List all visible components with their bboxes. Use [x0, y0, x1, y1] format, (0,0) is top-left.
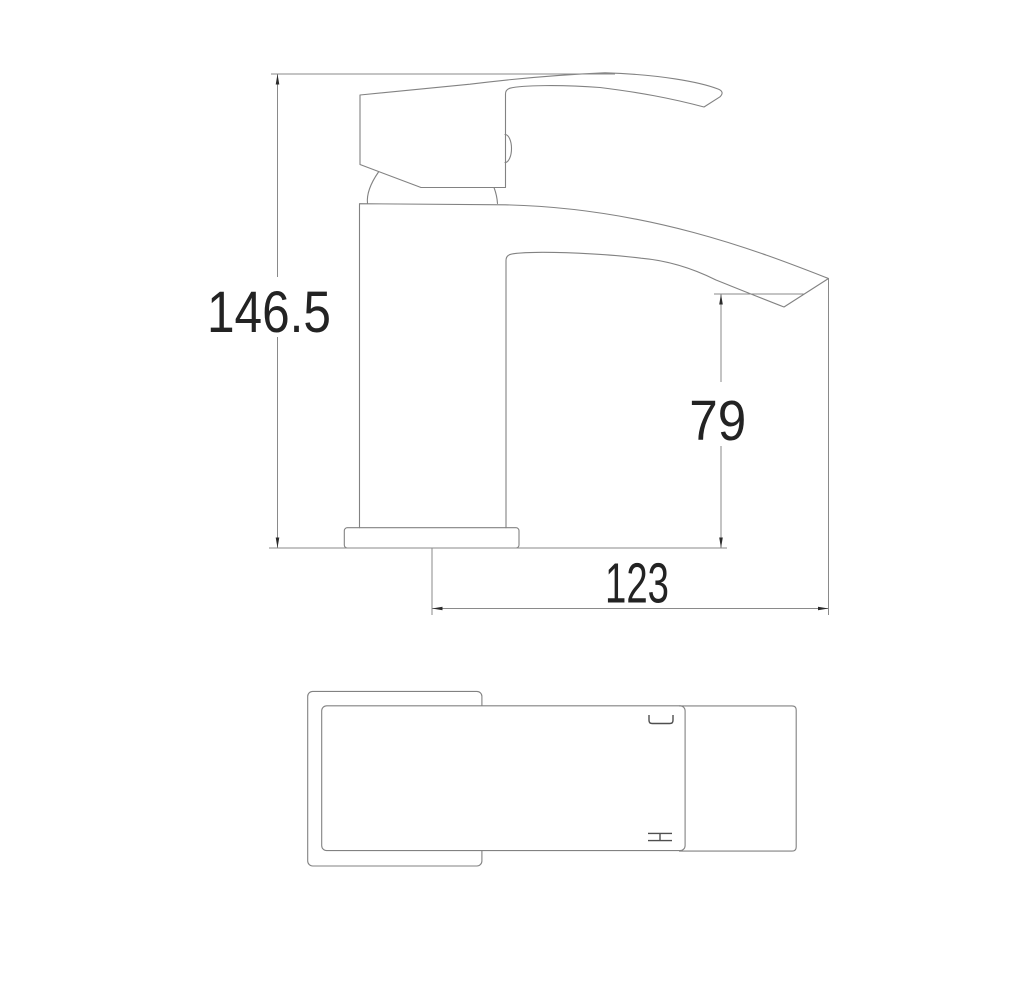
svg-text:146.5: 146.5 [207, 280, 331, 345]
svg-text:123: 123 [605, 552, 669, 616]
svg-text:79: 79 [689, 389, 746, 453]
